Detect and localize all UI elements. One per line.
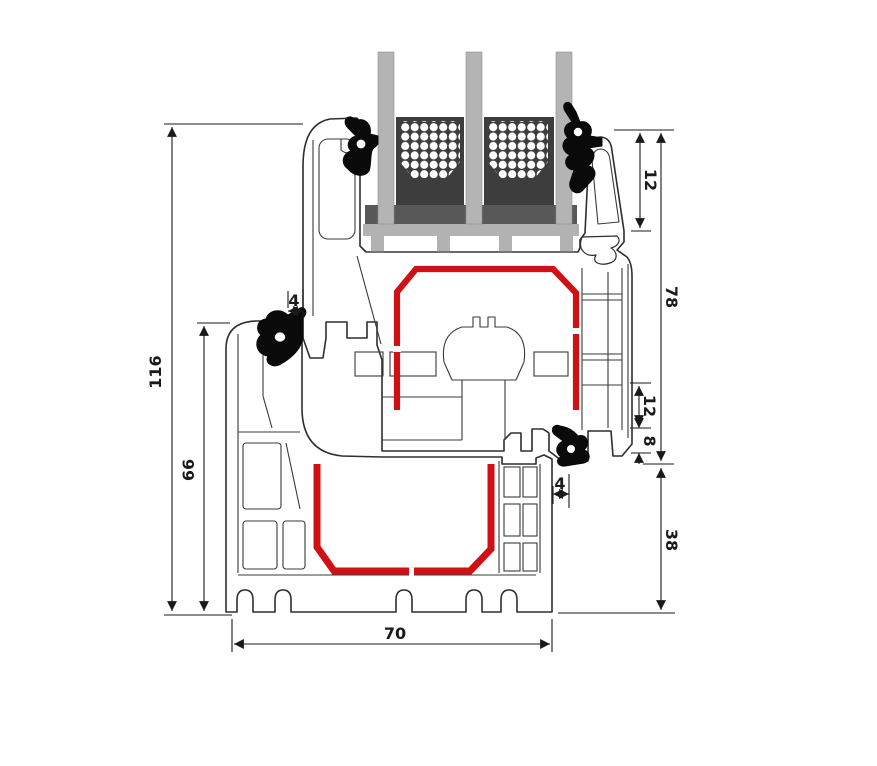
gasket-hole: [567, 445, 575, 453]
dimension-overlap: 8: [631, 415, 659, 464]
steel-break: [572, 328, 580, 334]
glazing-unit: [363, 52, 579, 253]
steel-break: [393, 346, 401, 352]
dimension-glazing-inset: 12: [614, 130, 674, 231]
dim-label-38: 38: [662, 529, 681, 551]
dim-label-116: 116: [146, 355, 165, 388]
gasket-hole: [275, 332, 285, 341]
dim-label-12-low: 12: [640, 395, 659, 417]
support-tab: [371, 236, 384, 253]
support-tab: [499, 236, 512, 253]
glass-pane-outer: [378, 52, 394, 224]
dimension-hardware-step: 12: [630, 383, 659, 428]
steel-break: [409, 565, 414, 577]
gasket-hole: [574, 128, 582, 136]
glass-pane-middle: [466, 52, 482, 224]
dim-label-70: 70: [384, 624, 406, 643]
dimension-frame-width: 70: [232, 619, 552, 652]
dim-label-4-right: 4: [554, 474, 565, 493]
dim-label-78: 78: [662, 286, 681, 308]
technical-drawing-window-cross-section: 116 66 4 12 78: [0, 0, 877, 766]
dimension-frame-height: 66: [179, 323, 230, 611]
desiccant-dots-left: [400, 121, 460, 178]
dim-label-4-top: 4: [288, 291, 299, 310]
gasket-hole: [357, 140, 366, 149]
support-tab: [437, 236, 450, 253]
dim-label-66: 66: [179, 459, 198, 481]
glazing-bridge: [363, 224, 579, 236]
dim-label-8: 8: [640, 435, 659, 446]
dimension-gap-right: 4: [553, 474, 569, 508]
support-tab: [560, 236, 573, 253]
cross-section-svg: 116 66 4 12 78: [0, 0, 877, 766]
dim-label-12-top: 12: [641, 169, 660, 191]
dimension-frame-face: 38: [558, 468, 681, 613]
desiccant-dots-right: [488, 121, 548, 178]
